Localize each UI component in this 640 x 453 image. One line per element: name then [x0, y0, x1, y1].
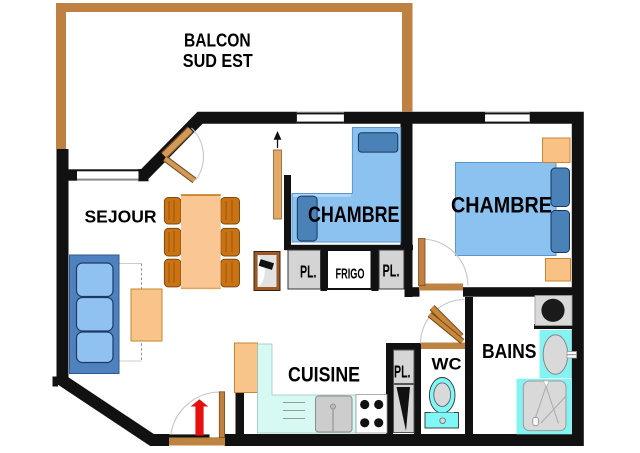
- svg-text:SUD EST: SUD EST: [183, 51, 253, 71]
- svg-text:CHAMBRE: CHAMBRE: [451, 193, 552, 218]
- svg-text:FRIGO: FRIGO: [336, 266, 365, 283]
- svg-text:BALCON: BALCON: [184, 30, 251, 50]
- svg-text:BAINS: BAINS: [482, 341, 537, 363]
- svg-text:CHAMBRE: CHAMBRE: [308, 202, 400, 227]
- svg-text:PL.: PL.: [394, 362, 411, 382]
- svg-text:SEJOUR: SEJOUR: [85, 206, 157, 226]
- svg-text:PL.: PL.: [383, 261, 400, 281]
- svg-text:WC: WC: [432, 355, 462, 374]
- svg-text:CUISINE: CUISINE: [288, 364, 360, 387]
- svg-text:PL.: PL.: [300, 262, 317, 282]
